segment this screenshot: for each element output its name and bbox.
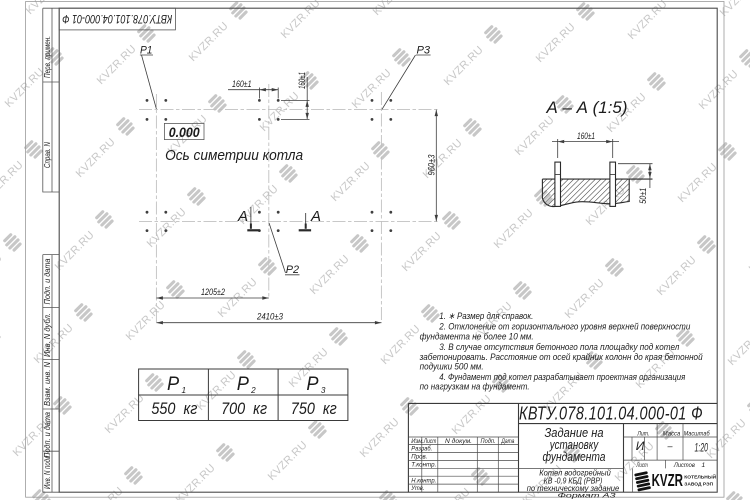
svg-text:N докум.: N докум. xyxy=(445,437,472,445)
svg-text:KVZR.RU: KVZR.RU xyxy=(442,44,486,88)
svg-text:фундамента не более 10 мм.: фундамента не более 10 мм. xyxy=(420,332,534,342)
svg-text:по нагрузкам на фундамент.: по нагрузкам на фундамент. xyxy=(420,382,530,392)
svg-text:KVZR.RU: KVZR.RU xyxy=(563,277,607,321)
svg-text:KVZR.RU: KVZR.RU xyxy=(0,252,5,296)
svg-text:Подп.: Подп. xyxy=(481,437,496,445)
svg-text:КВТУ.078.101.04.000-01 Ф: КВТУ.078.101.04.000-01 Ф xyxy=(519,403,703,424)
svg-text:KVZR.RU: KVZR.RU xyxy=(697,68,741,112)
svg-text:160±1: 160±1 xyxy=(577,131,595,141)
svg-text:Пров.: Пров. xyxy=(411,454,427,461)
svg-text:KVZR.RU: KVZR.RU xyxy=(492,207,536,251)
svg-text:KVZR.RU: KVZR.RU xyxy=(358,416,402,460)
svg-text:KVZR.RU: KVZR.RU xyxy=(350,67,394,111)
svg-text:Н.контр.: Н.контр. xyxy=(411,477,436,484)
svg-text:KVZR.RU: KVZR.RU xyxy=(371,0,415,18)
svg-text:KVZR.RU: KVZR.RU xyxy=(174,462,218,500)
svg-text:Масса: Масса xyxy=(663,430,681,437)
svg-text:KVZR.RU: KVZR.RU xyxy=(74,136,118,180)
svg-text:KVZR.RU: KVZR.RU xyxy=(379,323,423,367)
svg-text:фундамента: фундамента xyxy=(543,449,606,464)
svg-text:KVZR.RU: KVZR.RU xyxy=(429,486,473,500)
svg-text:А – А (1:5): А – А (1:5) xyxy=(545,99,627,117)
svg-text:KVZR.RU: KVZR.RU xyxy=(95,43,139,87)
svg-text:1: 1 xyxy=(701,462,705,469)
svg-text:KVZR.RU: KVZR.RU xyxy=(626,0,670,42)
svg-text:забетонировать. Расстояние от: забетонировать. Расстояние от осей крайн… xyxy=(419,352,703,362)
svg-text:700 кг: 700 кг xyxy=(221,399,267,418)
svg-text:КВТУ.078.101.04.000-01 Ф: КВТУ.078.101.04.000-01 Ф xyxy=(62,12,172,26)
svg-text:KVZR.RU: KVZR.RU xyxy=(0,159,26,203)
svg-text:P 1: P 1 xyxy=(167,374,186,395)
svg-text:1. ∗ Размер для справок.: 1. ∗ Размер для справок. xyxy=(439,311,533,321)
svg-text:KVZR.RU: KVZR.RU xyxy=(258,90,302,134)
svg-text:Справ. N: Справ. N xyxy=(42,141,52,168)
svg-text:KVZR.RU: KVZR.RU xyxy=(655,254,699,298)
svg-text:P2: P2 xyxy=(286,264,299,276)
svg-text:KVZR.RU: KVZR.RU xyxy=(187,20,231,64)
svg-text:Лит.: Лит. xyxy=(637,430,650,437)
svg-text:Т.контр.: Т.контр. xyxy=(411,462,436,469)
svg-text:Взам. инв. N: Взам. инв. N xyxy=(42,361,52,406)
svg-text:750 кг: 750 кг xyxy=(291,399,337,418)
svg-text:KVZR.RU: KVZR.RU xyxy=(513,114,557,158)
svg-text:Ось симетрии котла: Ось симетрии котла xyxy=(165,147,303,164)
svg-text:KVZR.RU: KVZR.RU xyxy=(329,160,373,204)
svg-text:И: И xyxy=(636,439,645,453)
svg-text:3. В случае отсутствия бетонно: 3. В случае отсутствия бетонного пола пл… xyxy=(439,342,679,352)
svg-text:Дата: Дата xyxy=(501,438,515,445)
svg-text:по техническому задание: по техническому задание xyxy=(527,484,620,493)
svg-text:550 кг: 550 кг xyxy=(151,399,197,418)
svg-text:Подп. и дата: Подп. и дата xyxy=(42,258,52,304)
svg-text:ЗАВОД РЭП: ЗАВОД РЭП xyxy=(684,481,713,487)
svg-text:КОТЕЛЬНЫЙ: КОТЕЛЬНЫЙ xyxy=(684,472,716,480)
svg-text:KVZR.RU: KVZR.RU xyxy=(266,439,310,483)
svg-text:А: А xyxy=(237,208,248,225)
svg-text:0.000: 0.000 xyxy=(169,124,200,140)
svg-text:KVZR.RU: KVZR.RU xyxy=(718,0,750,19)
svg-text:Разраб.: Разраб. xyxy=(411,445,432,453)
svg-text:Инв. N дубл.: Инв. N дубл. xyxy=(42,313,52,357)
svg-text:KVZR.RU: KVZR.RU xyxy=(676,161,720,205)
svg-text:–: – xyxy=(666,441,673,451)
svg-text:Листов: Листов xyxy=(673,462,695,469)
svg-text:960±3: 960±3 xyxy=(427,154,437,175)
svg-text:2410±3: 2410±3 xyxy=(256,312,283,322)
svg-text:Подп. и дата: Подп. и дата xyxy=(42,412,52,458)
svg-text:А: А xyxy=(310,208,321,225)
svg-text:1:20: 1:20 xyxy=(695,442,709,454)
svg-text:P 2: P 2 xyxy=(237,374,256,395)
svg-text:KVZR.RU: KVZR.RU xyxy=(124,299,168,343)
svg-text:Изм.: Изм. xyxy=(411,438,424,445)
svg-text:KVZR.RU: KVZR.RU xyxy=(450,393,494,437)
svg-text:KVZR.RU: KVZR.RU xyxy=(3,66,47,110)
svg-text:KVZR.RU: KVZR.RU xyxy=(103,392,147,436)
svg-text:Инв. N подл.: Инв. N подл. xyxy=(42,454,52,489)
svg-text:Лист: Лист xyxy=(636,462,648,469)
svg-text:Масштаб: Масштаб xyxy=(684,429,710,437)
svg-text:KVZR.RU: KVZR.RU xyxy=(726,324,750,368)
svg-text:1205±2: 1205±2 xyxy=(201,287,225,297)
svg-text:KVZR.RU: KVZR.RU xyxy=(308,253,352,297)
svg-text:2. Отклонение от горизонтально: 2. Отклонение от горизонтального уровня … xyxy=(438,321,690,331)
svg-text:4. Фундамент под котел разраба: 4. Фундамент под котел разрабатывает про… xyxy=(439,372,685,382)
svg-text:50±1: 50±1 xyxy=(638,188,648,204)
svg-text:KVZR: KVZR xyxy=(652,472,684,491)
svg-text:KVZR.RU: KVZR.RU xyxy=(279,0,323,41)
svg-text:KVZR.RU: KVZR.RU xyxy=(534,21,578,65)
svg-text:P 3: P 3 xyxy=(306,374,325,395)
svg-text:подушки 500 мм.: подушки 500 мм. xyxy=(420,362,484,372)
svg-text:160±1: 160±1 xyxy=(232,79,252,89)
svg-text:KVZR.RU: KVZR.RU xyxy=(400,230,444,274)
svg-text:Формат А3: Формат А3 xyxy=(558,493,617,500)
svg-text:Перв. примен.: Перв. примен. xyxy=(42,36,52,78)
svg-text:Лист: Лист xyxy=(423,438,437,445)
svg-text:Утв.: Утв. xyxy=(410,485,424,492)
svg-text:160±1: 160±1 xyxy=(297,72,307,89)
